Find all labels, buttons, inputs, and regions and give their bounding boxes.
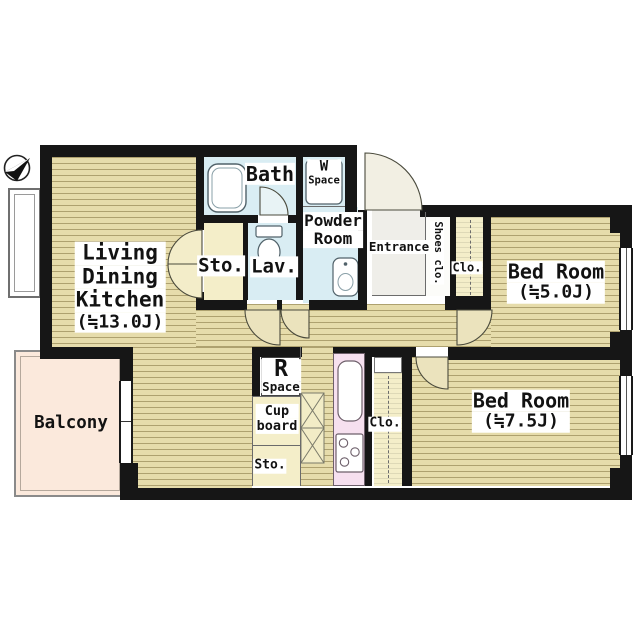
- room-label-bedroom7: Bed Room (≒7.5J): [472, 390, 570, 433]
- ldk-area-label: (≒13.0J): [75, 312, 166, 332]
- room-label-bath: Bath: [245, 163, 295, 185]
- room-label-bedroom5: Bed Room (≒5.0J): [507, 261, 605, 304]
- room-label-entrance: Entrance: [368, 240, 430, 254]
- floor-plan: Living Dining Kitchen (≒13.0J) Bath W Sp…: [0, 0, 640, 640]
- room-label-shoes-clo: Shoes clo.: [430, 221, 444, 284]
- room-label-clo-upper: Clo.: [452, 261, 483, 274]
- room-label-rspace: R Space: [261, 359, 301, 393]
- room-label-powder: Powder Room: [303, 212, 363, 248]
- room-label-balcony: Balcony: [33, 414, 109, 434]
- ldk-label-line3: Kitchen: [75, 289, 166, 313]
- room-label-sto-lower: Sto.: [253, 459, 286, 474]
- room-label-lav: Lav.: [250, 256, 298, 277]
- room-label-clo-lower: Clo.: [368, 417, 401, 432]
- room-label-sto-upper: Sto.: [197, 255, 245, 276]
- ldk-label-line2: Dining: [75, 265, 166, 289]
- ldk-label-line1: Living: [75, 242, 166, 266]
- room-label-cupboard: Cup board: [256, 404, 299, 434]
- room-label-ldk: Living Dining Kitchen (≒13.0J): [75, 242, 166, 333]
- room-label-wspace: W Space: [307, 159, 341, 186]
